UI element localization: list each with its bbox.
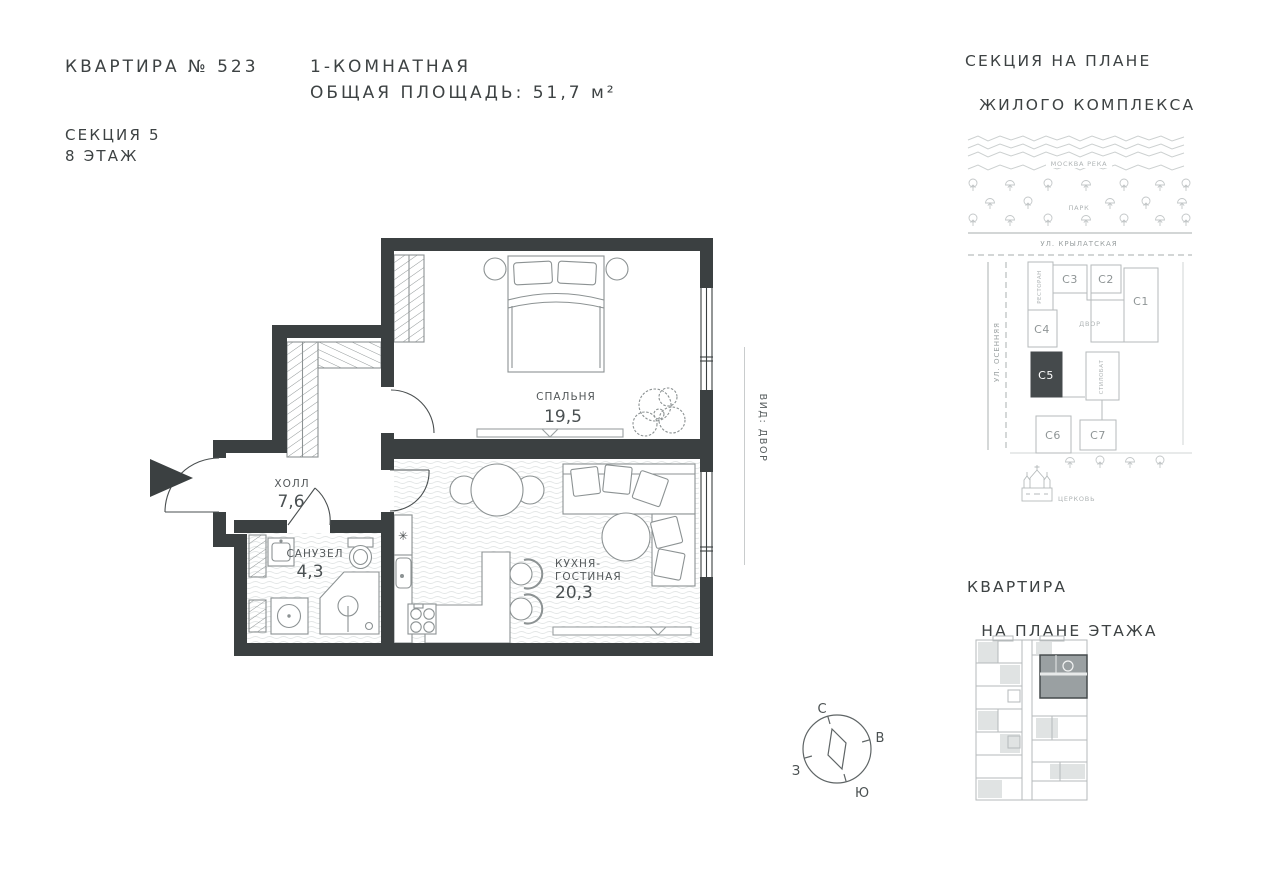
site-map: МОСКВА РЕКА ПАРК УЛ. КРЫЛАТСКАЯ УЛ. ОСЕН… [968, 136, 1192, 503]
floor-plan-sheet: КВАРТИРА № 523 1-КОМНАТНАЯ ОБЩАЯ ПЛОЩАДЬ… [0, 0, 1263, 893]
label-c6: С6 [1045, 429, 1061, 442]
dining-table [471, 464, 523, 516]
washing-machine [271, 598, 308, 634]
bottom-trees [1066, 456, 1165, 468]
kitchen-label-line1: КУХНЯ- [555, 558, 601, 570]
bedroom-wardrobe [394, 255, 424, 342]
compass-south: Ю [855, 786, 869, 801]
compass-north: С [817, 702, 826, 717]
street-top-label: УЛ. КРЫЛАТСКАЯ [1040, 240, 1117, 248]
church-icon [1022, 465, 1052, 501]
nightstand-left [484, 258, 506, 280]
label-c4: С4 [1034, 323, 1050, 336]
sofa-pillow [654, 549, 686, 581]
kitchen-radiator [553, 627, 691, 635]
plan-canvas: СПАЛЬНЯ 19,5 ХОЛЛ 7,6 САНУЗЕЛ 4,3 КУХНЯ-… [0, 0, 1263, 893]
pillow [557, 261, 596, 285]
hall-area: 7,6 [277, 492, 304, 512]
view-axis: ВИД: ДВОР [745, 347, 769, 565]
label-c7: С7 [1090, 429, 1106, 442]
sofa-pillow [650, 516, 683, 549]
toilet [348, 538, 373, 569]
street-left-label: УЛ. ОСЕННЯЯ [993, 322, 1001, 382]
restaurant-label: РЕСТОРАН [1037, 270, 1043, 304]
coffee-table [602, 513, 650, 561]
bed [484, 256, 628, 372]
bedroom-window [699, 288, 714, 390]
pillow [513, 261, 552, 285]
park-label: ПАРК [1068, 204, 1089, 212]
bathroom-area: 4,3 [296, 562, 323, 582]
nightstand-right [606, 258, 628, 280]
hall-wardrobe [287, 342, 381, 457]
bedroom-door-arc [391, 390, 434, 433]
floor-thumbnail [976, 636, 1087, 800]
plant [633, 388, 685, 436]
bedroom-radiator [477, 429, 623, 437]
courtyard-label: ДВОР [1079, 320, 1101, 328]
thumb-highlighted-unit [1040, 655, 1087, 698]
view-label: ВИД: ДВОР [757, 394, 768, 463]
fridge-icon: ✳ [398, 529, 408, 543]
label-c1: С1 [1133, 295, 1149, 308]
sofa-pillow [603, 465, 633, 495]
compass: С В З Ю [792, 702, 885, 801]
entrance-arrow-icon [150, 459, 193, 497]
bedroom-area: 19,5 [544, 407, 582, 427]
bedroom-label: СПАЛЬНЯ [536, 391, 596, 403]
river-label: МОСКВА РЕКА [1051, 160, 1108, 168]
bath-shelf [249, 600, 266, 632]
kitchen-area: 20,3 [555, 583, 593, 603]
church-label: ЦЕРКОВЬ [1058, 495, 1095, 503]
sofa-pillow [571, 466, 601, 496]
living-window [699, 472, 714, 577]
stove [408, 604, 436, 634]
compass-west: З [792, 764, 800, 779]
kitchen-sink [396, 558, 411, 588]
bathroom-label: САНУЗЕЛ [286, 548, 343, 560]
hall-label: ХОЛЛ [274, 478, 309, 490]
label-c3: С3 [1062, 273, 1078, 286]
label-c2: С2 [1098, 273, 1114, 286]
compass-east: В [876, 731, 885, 746]
kitchen-label-line2: ГОСТИНАЯ [555, 571, 622, 583]
bath-shelf [249, 535, 266, 577]
buildings [1028, 262, 1158, 453]
stylobate-label: СТИЛОБАТ [1099, 360, 1105, 395]
label-c5: С5 [1038, 369, 1054, 382]
compass-needle-icon [828, 729, 846, 769]
